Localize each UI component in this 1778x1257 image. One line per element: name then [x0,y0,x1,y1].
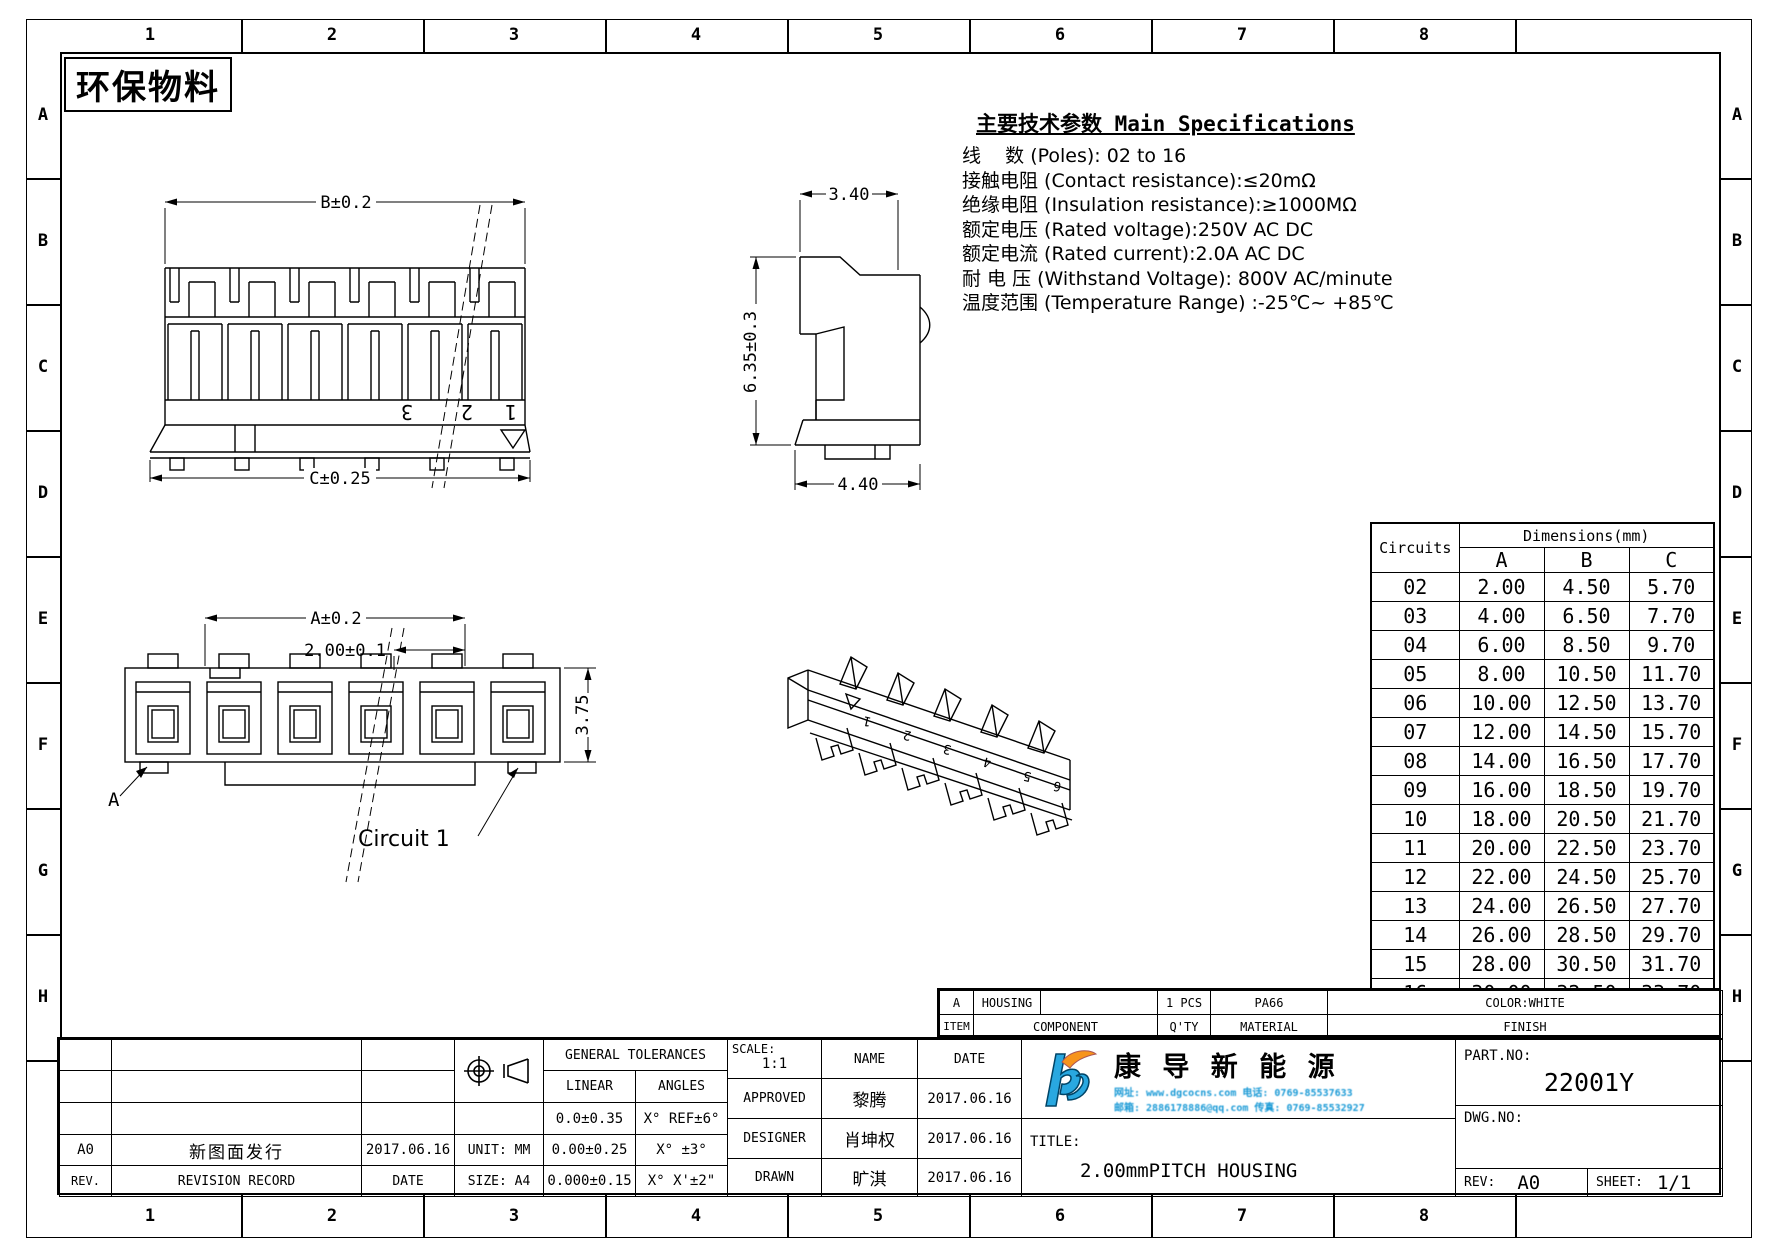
zone-tick [1151,19,1153,52]
zone-tick [787,19,789,52]
sheet-cell: SHEET: 1/1 [1587,1168,1723,1197]
spec-line: 接触电阻 (Contact resistance):≤20mΩ [962,169,1522,194]
zone-label: 7 [1237,25,1247,45]
zone-label: 4 [691,25,701,45]
zone-tick [1151,1195,1153,1238]
zone-tick [1721,304,1752,306]
dim-table-row: 0916.0018.5019.70 [1371,776,1714,805]
zone-tick [787,1195,789,1238]
drawn-date: 2017.06.16 [917,1158,1022,1197]
company-logo-icon [1032,1044,1102,1114]
dwg-no-cell: DWG.NO: [1455,1105,1723,1169]
drawn-label: DRAWN [727,1158,822,1197]
zone-tick [969,1195,971,1238]
zone-label: E [38,609,48,629]
zone-tick [1721,934,1752,936]
zone-label: B [38,231,48,251]
name-column-header: NAME [821,1039,918,1079]
zone-label: 6 [1055,1206,1065,1226]
designer-name: 肖坤权 [821,1118,918,1159]
rev-empty-2 [111,1039,362,1071]
drawing-title: 2.00mmPITCH HOUSING [1080,1160,1297,1182]
specs-title: 主要技术参数 Main Specifications [976,108,1522,138]
rev-empty-5 [111,1070,362,1103]
bottom-dim-pitch: 2.00±0.1 [304,641,386,661]
zone-label: G [1732,861,1742,881]
zone-label: C [1732,357,1742,377]
iso-pin-5: 5 [1022,767,1033,783]
angle-tol-3: X° X'±2" [635,1165,728,1197]
approved-date: 2017.06.16 [917,1078,1022,1119]
dim-table-col-a: A [1459,548,1544,573]
zone-label: A [1732,105,1742,125]
zone-tick [1515,1195,1517,1238]
zone-tick [1721,682,1752,684]
approved-name: 黎腾 [821,1078,918,1119]
part-no-value: 22001Y [1544,1068,1634,1097]
company-contact-1: 网址: www.dgcocns.com 电话: 0769-85537633 [1114,1084,1365,1099]
rev-empty-1 [59,1039,112,1071]
spec-line: 绝缘电阻 (Insulation resistance):≥1000MΩ [962,193,1522,218]
general-tolerances-header: GENERAL TOLERANCES [543,1039,728,1071]
zone-label: F [38,735,48,755]
rev-a0: A0 [59,1134,112,1166]
zone-label: 8 [1419,25,1429,45]
main-specifications: 主要技术参数 Main Specifications 线 数 (Poles): … [962,108,1522,316]
linear-tol-1: 0.0±0.35 [543,1102,636,1135]
zone-label: 8 [1419,1206,1429,1226]
rev-empty-8 [111,1102,362,1135]
revision-record-label: REVISION RECORD [111,1165,362,1197]
iso-pin-6: 6 [1052,777,1063,793]
zone-label: 6 [1055,25,1065,45]
iso-pin-2: 2 [902,726,913,742]
side-dim-height: 6.35±0.3 [741,311,761,393]
dim-table-row: 0814.0016.5017.70 [1371,747,1714,776]
drawn-name: 旷淇 [821,1158,918,1197]
spec-line: 线 数 (Poles): 02 to 16 [962,144,1522,169]
zone-tick [26,808,60,810]
angle-tol-2: X° ±3° [635,1134,728,1166]
dim-table-row: 022.004.505.70 [1371,573,1714,602]
dim-table-row: 1018.0020.5021.70 [1371,805,1714,834]
zone-label: 1 [145,1206,155,1226]
zone-tick [26,1060,60,1062]
title-cell: TITLE: 2.00mmPITCH HOUSING [1021,1118,1456,1197]
scale-label: SCALE: [732,1042,775,1056]
angle-tol-1: X° REF±6° [635,1102,728,1135]
rev-description: 新图面发行 [111,1134,362,1166]
dim-table-row: 1222.0024.5025.70 [1371,863,1714,892]
designer-date: 2017.06.16 [917,1118,1022,1159]
component-header-finish: FINISH [1327,1014,1723,1039]
first-angle-projection-icon [464,1056,534,1086]
zone-label: F [1732,735,1742,755]
part-no-label: PART.NO: [1464,1048,1531,1064]
front-pin-2: 2 [461,400,473,424]
component-header-material: MATERIAL [1210,1014,1328,1039]
rev-date: 2017.06.16 [361,1134,455,1166]
zone-tick [1721,1060,1752,1062]
date-label: DATE [361,1165,455,1197]
rev-empty-3 [361,1039,455,1071]
section-label-a: A [108,789,120,811]
component-name-extra [1040,990,1158,1015]
zone-label: 7 [1237,1206,1247,1226]
spec-line: 温度范围 (Temperature Range) :-25℃~ +85℃ [962,291,1522,316]
zone-tick [1333,1195,1335,1238]
rev-empty-6 [361,1070,455,1103]
dim-table-row: 034.006.507.70 [1371,602,1714,631]
dim-table-row: 0712.0014.5015.70 [1371,718,1714,747]
zone-label: 3 [509,25,519,45]
spec-line: 耐 电 压 (Withstand Voltage): 800V AC/minut… [962,267,1522,292]
zone-label: H [38,987,48,1007]
front-dim-width: B±0.2 [320,193,371,213]
pin1-triangle-marker [501,430,525,448]
scale-cell: SCALE: 1:1 [727,1039,822,1079]
zone-label: 1 [145,25,155,45]
unit-label: UNIT: MM [454,1134,544,1166]
zone-tick [241,19,243,52]
zone-tick [26,304,60,306]
company-logo-cell: 康 导 新 能 源 网址: www.dgcocns.com 电话: 0769-8… [1021,1039,1456,1119]
zone-label: H [1732,987,1742,1007]
rev-field-value: A0 [1517,1172,1540,1194]
zone-label: 3 [509,1206,519,1226]
front-pin-3: 3 [401,400,413,424]
iso-pin-4: 4 [982,753,993,769]
rev-field-label: REV: [1464,1175,1495,1190]
zone-tick [26,682,60,684]
dim-table-row: 1426.0028.5029.70 [1371,921,1714,950]
dim-table-dimensions-header: Dimensions(mm) [1459,523,1714,548]
front-view-drawing: B±0.2 3 2 1 C±0.25 [140,190,540,490]
zone-label: D [38,483,48,503]
rev-field-cell: REV: A0 [1455,1168,1588,1197]
approved-label: APPROVED [727,1078,822,1119]
zone-label: C [38,357,48,377]
side-view-drawing: 3.40 6.35±0.3 4.40 [690,172,940,512]
zone-tick [1721,556,1752,558]
dim-table-circuits-header: Circuits [1371,523,1459,573]
title-block: A0 新图面发行 2017.06.16 REV. REVISION RECORD… [57,1037,1721,1195]
component-finish: COLOR:WHITE [1327,990,1723,1015]
zone-label: E [1732,609,1742,629]
dim-table-col-c: C [1629,548,1714,573]
dimensions-table: Circuits Dimensions(mm) A B C 022.004.50… [1370,522,1715,1009]
zone-label: B [1732,231,1742,251]
component-qty: 1 PCS [1157,990,1211,1015]
angles-header: ANGLES [635,1070,728,1103]
zone-label: G [38,861,48,881]
zone-tick [423,1195,425,1238]
iso-pin-1: 1 [862,712,873,728]
dim-table-row: 1324.0026.5027.70 [1371,892,1714,921]
zone-label: 2 [327,25,337,45]
date-column-header: DATE [917,1039,1022,1079]
zone-tick [1721,178,1752,180]
component-name: HOUSING [973,990,1041,1015]
front-pin-1: 1 [505,400,517,424]
unit-empty-cell [454,1102,544,1135]
bottom-dim-width: A±0.2 [310,609,361,629]
dim-table-row: 1528.0030.5031.70 [1371,950,1714,979]
part-no-cell: PART.NO: 22001Y [1455,1039,1723,1106]
side-dim-bottom: 4.40 [838,475,879,495]
drawing-sheet: 环保物料 主要技术参数 Main Specifications 线 数 (Pol… [0,0,1778,1257]
component-header-component: COMPONENT [973,1014,1158,1039]
sheet-value: 1/1 [1657,1172,1691,1194]
zone-label: 5 [873,25,883,45]
rev-empty-7 [59,1102,112,1135]
zone-tick [605,19,607,52]
company-contact-2: 邮箱: 2886178886@qq.com 传真: 0769-85532927 [1114,1099,1365,1114]
dim-table-col-b: B [1544,548,1629,573]
linear-header: LINEAR [543,1070,636,1103]
zone-label: 5 [873,1206,883,1226]
eco-material-box: 环保物料 [64,57,232,112]
title-label: TITLE: [1030,1134,1081,1150]
scale-value: 1:1 [762,1056,787,1072]
linear-tol-2: 0.00±0.25 [543,1134,636,1166]
isometric-view-drawing: 1 2 3 4 5 6 [760,548,1090,898]
rev-empty-9 [361,1102,455,1135]
zone-tick [1721,808,1752,810]
size-label: SIZE: A4 [454,1165,544,1197]
zone-tick [26,430,60,432]
zone-tick [423,19,425,52]
dim-table-row: 1120.0022.5023.70 [1371,834,1714,863]
designer-label: DESIGNER [727,1118,822,1159]
company-name: 康 导 新 能 源 [1114,1045,1365,1084]
iso-pin-3: 3 [942,740,953,756]
specs-lines: 线 数 (Poles): 02 to 16接触电阻 (Contact resis… [962,144,1522,316]
zone-tick [1515,19,1517,52]
component-table: A HOUSING 1 PCS PA66 COLOR:WHITE ITEM CO… [937,988,1721,1037]
zone-label: 4 [691,1206,701,1226]
dim-table-row: 046.008.509.70 [1371,631,1714,660]
zone-tick [26,178,60,180]
dim-table-row: 058.0010.5011.70 [1371,660,1714,689]
dimensions-table-body: 022.004.505.70034.006.507.70046.008.509.… [1371,573,1714,1009]
projection-symbol-cell [454,1039,544,1103]
rev-empty-4 [59,1070,112,1103]
spec-line: 额定电压 (Rated voltage):250V AC DC [962,218,1522,243]
component-header-qty: Q'TY [1157,1014,1211,1039]
dim-table-row: 0610.0012.5013.70 [1371,689,1714,718]
circuit1-label: Circuit 1 [358,827,450,852]
zone-label: A [38,105,48,125]
zone-label: D [1732,483,1742,503]
component-material: PA66 [1210,990,1328,1015]
zone-tick [1333,19,1335,52]
zone-tick [26,934,60,936]
bottom-dim-height: 3.75 [573,695,593,736]
front-dim-overall: C±0.25 [309,469,370,489]
zone-tick [605,1195,607,1238]
linear-tol-3: 0.000±0.15 [543,1165,636,1197]
sheet-label: SHEET: [1596,1175,1643,1190]
component-item-id: A [939,990,974,1015]
zone-tick [969,19,971,52]
side-dim-top: 3.40 [829,185,870,205]
zone-label: 2 [327,1206,337,1226]
zone-tick [26,556,60,558]
spec-line: 额定电流 (Rated current):2.0A AC DC [962,242,1522,267]
zone-tick [241,1195,243,1238]
rev-label: REV. [59,1165,112,1197]
component-header-item: ITEM [939,1014,974,1039]
bottom-view-drawing: A±0.2 2.00±0.1 3.75 A Circuit 1 [90,590,610,890]
zone-tick [1721,430,1752,432]
